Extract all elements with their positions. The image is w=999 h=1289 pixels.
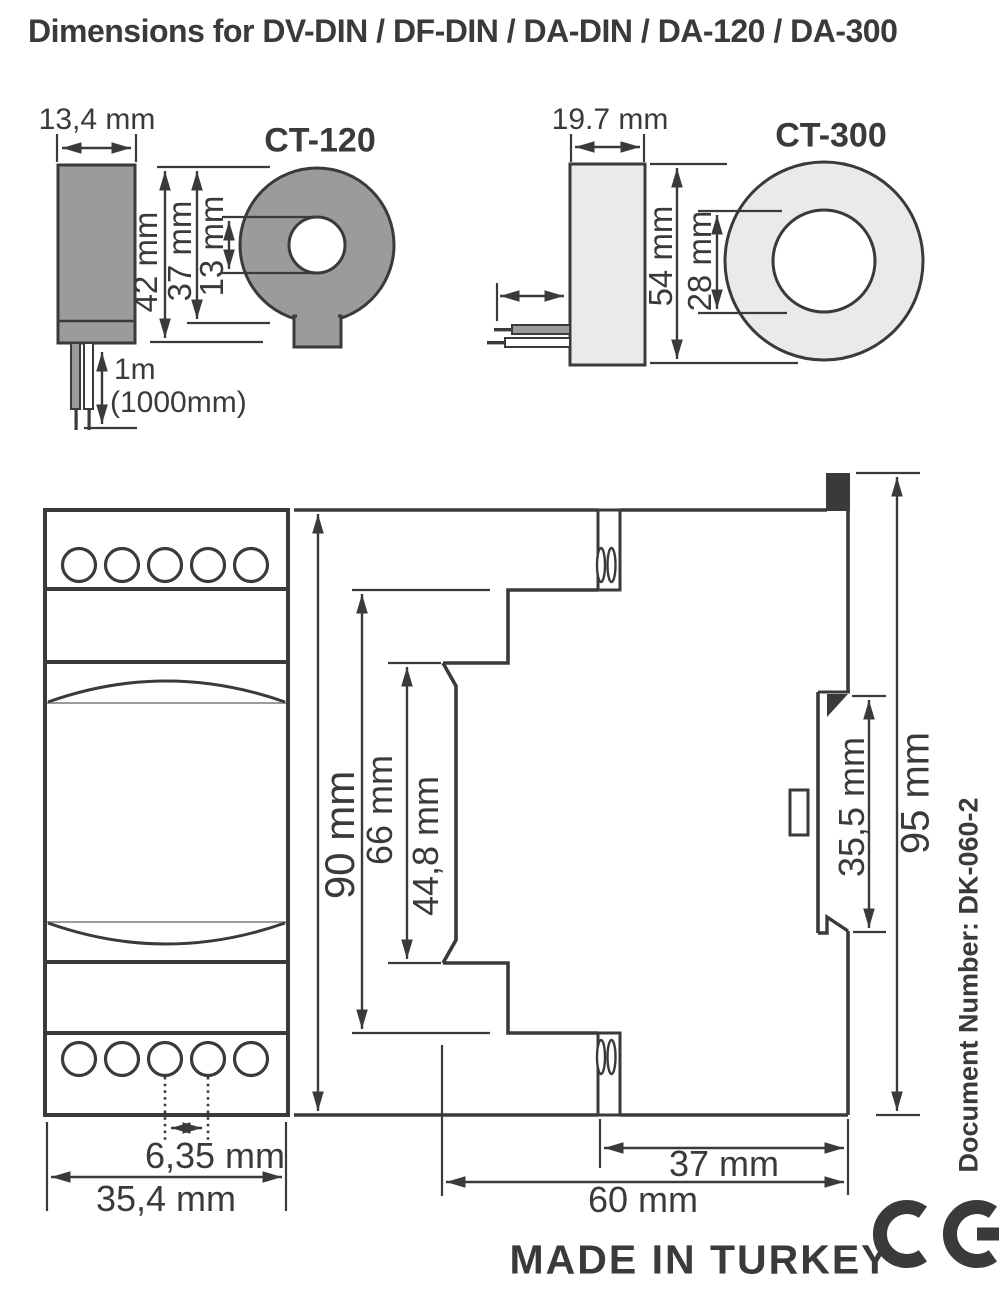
ct300-ring-hole <box>773 210 875 312</box>
din-448mm-label: 44,8 mm <box>405 776 447 916</box>
ct120-wires <box>71 343 93 430</box>
din-screw-channel-bottom <box>597 1033 620 1115</box>
ct120-title: CT-120 <box>264 122 376 161</box>
ct300-hole-label: 28 mm <box>681 211 719 312</box>
ct120-width-label: 13,4 mm <box>39 103 156 137</box>
din-355mm-label: 35,5 mm <box>831 737 873 877</box>
ct300-side-view <box>487 134 645 365</box>
ct120-body <box>58 165 135 343</box>
din-pitch-label: 6,35 mm <box>145 1135 285 1177</box>
din-screw-channel-top <box>597 510 620 590</box>
made-in-label: MADE IN TURKEY <box>509 1237 890 1284</box>
din-rail-clip-top <box>826 473 850 511</box>
din-90mm-label: 90 mm <box>316 771 364 899</box>
din-release-tab <box>790 790 808 835</box>
din-rail-hook-top <box>827 694 848 717</box>
document-number-label: Document Number: DK-060-2 <box>954 797 985 1172</box>
ct300-body <box>570 164 645 365</box>
din-module-front-view <box>45 510 318 1211</box>
ce-mark-icon <box>880 1207 999 1261</box>
dimension-sheet: Dimensions for DV-DIN / DF-DIN / DA-DIN … <box>0 0 999 1289</box>
ct120-height-label: 42 mm <box>127 212 165 313</box>
ct120-cable-length-label: 1m <box>114 353 156 387</box>
din-60mm-label: 60 mm <box>588 1179 698 1221</box>
din-66mm-label: 66 mm <box>359 755 401 865</box>
ct300-diameter-label: 54 mm <box>642 206 680 307</box>
ct300-width-label: 19.7 mm <box>552 103 669 137</box>
ct300-title: CT-300 <box>775 117 887 156</box>
ct120-ring-hole <box>289 217 345 273</box>
din-95mm-label: 95 mm <box>894 732 939 854</box>
ct120-cable-length-mm-label: (1000mm) <box>110 386 247 420</box>
din-width-label: 35,4 mm <box>96 1178 236 1220</box>
din-front-outline <box>45 510 288 1115</box>
ct300-wires <box>487 325 570 347</box>
technical-drawing <box>0 0 999 1289</box>
ct120-hole-label: 13 mm <box>193 196 231 297</box>
page-title: Dimensions for DV-DIN / DF-DIN / DA-DIN … <box>28 13 897 50</box>
din-rail-hook-bottom <box>818 917 848 933</box>
